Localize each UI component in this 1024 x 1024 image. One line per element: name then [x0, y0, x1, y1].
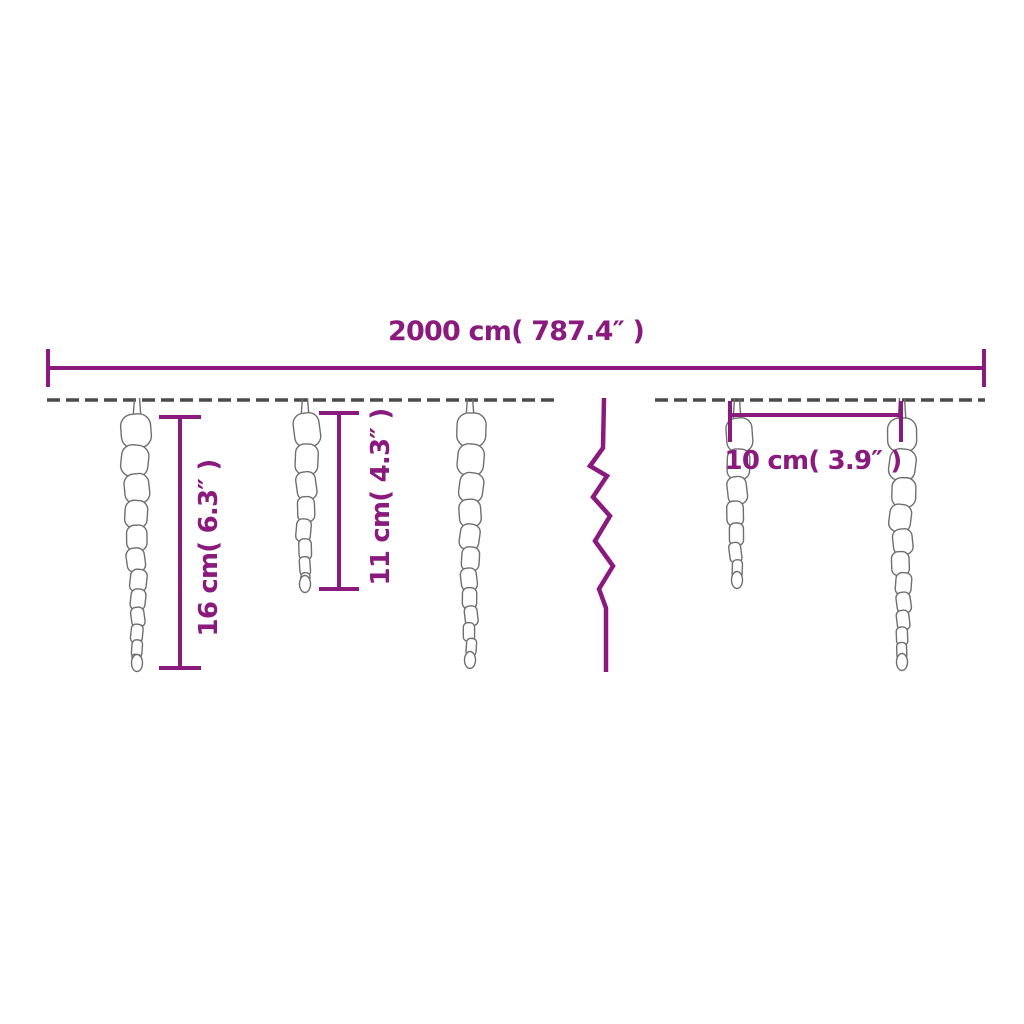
diagram-graphics [0, 0, 1024, 1024]
total-length-dimension [48, 349, 984, 387]
icicle-segment [295, 444, 319, 476]
icicle-segment [297, 496, 315, 522]
icicle-3 [456, 398, 486, 669]
icicle-segment [120, 413, 153, 449]
icicle-segment [292, 411, 322, 448]
icicle-spacing-dimension [730, 401, 901, 442]
small-icicle-height-dimension [319, 413, 359, 589]
icicle-1 [120, 398, 153, 672]
icicle-2 [292, 398, 322, 593]
icicle-segment [456, 443, 485, 477]
icicle-tip [732, 572, 743, 589]
icicle-tip [465, 652, 476, 669]
icicle-lights-dimension-diagram: 2000 cm( 787.4″ ) 16 cm( 6.3″ ) 11 cm( 4… [0, 0, 1024, 1024]
zigzag-break-icon [590, 398, 613, 672]
total-length-label: 2000 cm( 787.4″ ) [48, 318, 984, 345]
small-icicle-height-label: 11 cm( 4.3″ ) [368, 409, 394, 586]
icicle-spacing-label: 10 cm( 3.9″ ) [725, 448, 902, 474]
icicle-segment [120, 444, 150, 478]
icicle-tip [300, 576, 311, 593]
icicle-tip [897, 654, 908, 671]
icicle-tip [132, 655, 143, 672]
icicle-segment [456, 413, 486, 448]
icicle-segment [892, 477, 917, 507]
large-icicle-height-label: 16 cm( 6.3″ ) [196, 460, 222, 637]
